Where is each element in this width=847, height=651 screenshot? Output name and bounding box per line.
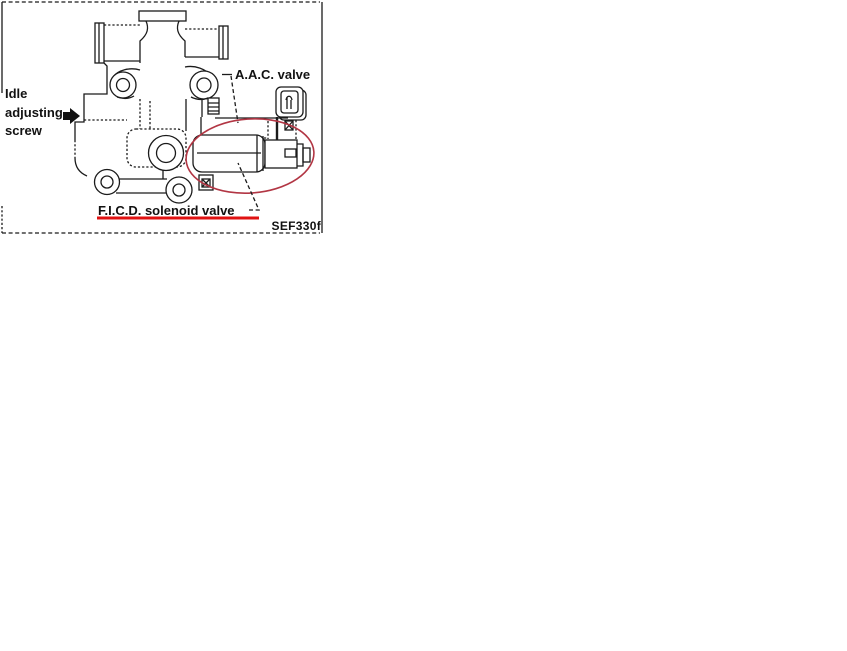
- right-ear-boss: [190, 71, 218, 99]
- aac-leader-line: [231, 76, 238, 123]
- figure-drawing: Idle adjusting screw A.A.C. valve F.I.C.…: [0, 0, 330, 240]
- connector-drawing: [268, 87, 306, 140]
- label-idle-line3: screw: [5, 123, 43, 138]
- center-boss: [149, 136, 184, 171]
- service-manual-figure: Idle adjusting screw A.A.C. valve F.I.C.…: [0, 0, 330, 240]
- figure-code: SEF330f: [272, 219, 322, 233]
- left-ear-boss: [110, 72, 136, 98]
- red-underline: [97, 217, 259, 220]
- throttle-chamber-drawing: [75, 11, 228, 203]
- page-background: Idle adjusting screw A.A.C. valve F.I.C.…: [0, 0, 847, 651]
- ficd-solenoid-drawing: [193, 135, 310, 172]
- label-idle-line1: Idle: [5, 86, 27, 101]
- lower-left-boss: [95, 170, 120, 195]
- label-aac-valve: A.A.C. valve: [235, 67, 310, 82]
- label-ficd-solenoid-valve: F.I.C.D. solenoid valve: [98, 203, 235, 218]
- bottom-boss: [166, 177, 192, 203]
- label-idle-line2: adjusting: [5, 105, 63, 120]
